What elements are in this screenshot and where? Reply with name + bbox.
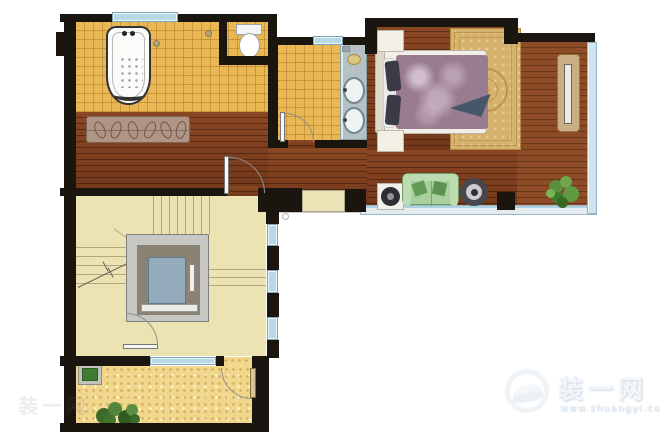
window — [150, 357, 216, 365]
wall-stairwell — [266, 196, 279, 224]
wall-stairwell-south — [216, 356, 224, 366]
side-table-tray-center — [387, 193, 394, 200]
window — [267, 317, 278, 340]
wall-wc-partition — [219, 56, 269, 65]
ottoman-center — [471, 189, 478, 196]
stair-tread — [177, 191, 178, 234]
nightstand — [377, 130, 404, 152]
potted-plant — [557, 197, 568, 208]
vanity-dish — [347, 54, 361, 65]
window — [112, 12, 178, 22]
potted-plant — [546, 189, 555, 198]
bathtub-faucet — [130, 31, 135, 36]
window — [313, 36, 343, 45]
wall-hallway — [60, 188, 227, 196]
wall — [277, 37, 315, 45]
floor-plan: 装一网 装一网 www.zhuangyi.com — [0, 0, 660, 436]
bathtub-faucet — [122, 31, 127, 36]
sofa-pillow — [432, 181, 447, 196]
stair-tread — [201, 191, 202, 234]
wall-washroom — [268, 44, 278, 148]
bathroom-floor — [76, 22, 268, 112]
bathtub — [106, 26, 151, 105]
wall-washroom — [315, 140, 367, 148]
stair-tread — [209, 285, 266, 286]
bench-item — [174, 120, 188, 140]
wall-stairwell — [267, 293, 279, 317]
stair-tread — [169, 191, 170, 234]
wall-terrace-south — [60, 423, 269, 432]
window — [267, 270, 278, 293]
sink-faucet — [343, 88, 347, 92]
elevator-car — [148, 257, 186, 304]
toilet-bowl — [239, 33, 260, 58]
vanity-item — [342, 46, 350, 52]
sofa-back — [411, 174, 452, 181]
stair-tread — [193, 191, 194, 234]
wall-balcony-pier — [497, 192, 515, 210]
balcony-glass-wall — [587, 42, 597, 214]
stair-tread — [209, 269, 266, 270]
bench-item — [158, 120, 174, 140]
watermark-site-url: www.zhuangyi.com — [560, 404, 660, 414]
corner-watermark-text: 装一网 — [18, 394, 90, 418]
bed-pillow-dark — [384, 60, 401, 91]
window — [267, 224, 278, 246]
watermark-logo-icon — [506, 370, 548, 412]
sofa — [402, 173, 459, 205]
wall-balcony-top — [515, 33, 595, 42]
bed-duvet — [396, 55, 488, 129]
elevator-door-sill — [141, 304, 198, 312]
watermark-site-name: 装一网 — [558, 370, 648, 406]
nightstand — [377, 30, 404, 52]
floor-drain — [153, 40, 160, 47]
elevator-rail — [189, 264, 195, 292]
watermark: 装一网 www.zhuangyi.com — [500, 366, 660, 422]
sink-faucet — [343, 118, 347, 122]
bed-pillow-dark — [385, 94, 402, 125]
wall-bedroom-top — [365, 18, 517, 27]
bench-item — [126, 120, 140, 140]
corner-watermark: 装一网 — [18, 390, 90, 419]
exterior-edge-line — [278, 212, 370, 213]
entry-step — [302, 190, 345, 212]
stair-tread — [153, 191, 154, 234]
wall-stairwell — [267, 246, 279, 270]
wall-junction — [345, 189, 366, 212]
hallway-bench — [86, 116, 190, 143]
sofa-pillow — [411, 180, 427, 196]
wall-wc-partition — [219, 14, 227, 62]
wall-stairwell-south — [60, 356, 150, 366]
balcony-console-slot — [564, 64, 572, 124]
wall — [341, 37, 367, 45]
wall — [268, 14, 277, 46]
stair-tread — [185, 191, 186, 234]
stair-tread — [161, 191, 162, 234]
stair-tread — [209, 277, 266, 278]
stair-tread — [76, 256, 126, 257]
stair-tread — [209, 191, 210, 234]
terrace-door-threshold — [222, 357, 253, 366]
planter-greenery — [82, 368, 98, 381]
floor-drain — [205, 30, 212, 37]
bathtub-jets — [119, 56, 143, 88]
bathtub-shadow — [113, 88, 146, 101]
stair-tread — [76, 247, 126, 248]
sofa-armrest — [403, 174, 411, 206]
exterior-fixture — [282, 213, 289, 220]
wall-pier — [56, 32, 76, 56]
